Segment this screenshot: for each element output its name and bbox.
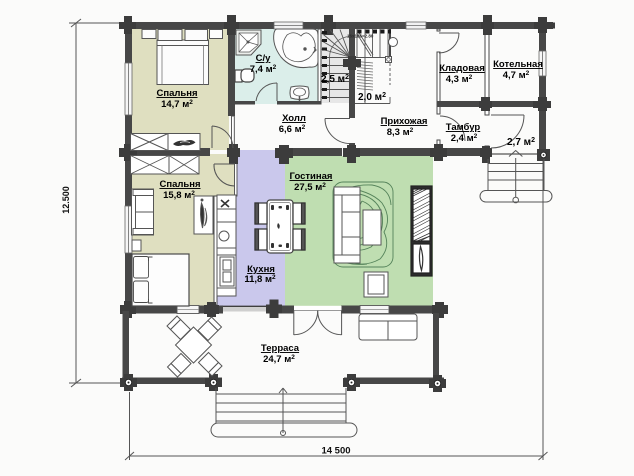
svg-text:С/у: С/у [256,53,272,64]
svg-text:4,3 м2: 4,3 м2 [446,74,473,85]
svg-text:24,7 м2: 24,7 м2 [263,354,295,365]
svg-text:Тамбур: Тамбур [446,122,481,133]
svg-text:2,7 м2: 2,7 м2 [507,137,535,148]
svg-text:4,7 м2: 4,7 м2 [503,70,530,81]
svg-text:Котельная: Котельная [493,59,543,70]
svg-text:12.500: 12.500 [61,186,71,214]
svg-text:27,5 м2: 27,5 м2 [294,182,326,193]
svg-text:Холл: Холл [282,113,306,124]
svg-text:2,4 м2: 2,4 м2 [451,133,478,144]
svg-text:11,8 м2: 11,8 м2 [244,274,276,285]
svg-text:Терраса: Терраса [261,343,300,354]
svg-text:Спальня: Спальня [159,179,200,190]
svg-text:2,5 м2: 2,5 м2 [321,74,349,85]
svg-text:Прихожая: Прихожая [381,116,428,127]
svg-text:2,0 м2: 2,0 м2 [358,92,386,103]
svg-text:15,8 м2: 15,8 м2 [163,190,195,201]
svg-text:14 500: 14 500 [321,446,350,457]
svg-text:6,6 м2: 6,6 м2 [279,124,306,135]
svg-text:8,3 м2: 8,3 м2 [387,127,414,138]
svg-text:16x186=2.80: 16x186=2.80 [347,34,374,39]
svg-text:Кладовая: Кладовая [439,63,485,74]
svg-text:Спальня: Спальня [156,88,197,99]
svg-text:Гостиная: Гостиная [290,171,333,182]
svg-text:14,7 м2: 14,7 м2 [161,99,193,110]
svg-text:7,4 м2: 7,4 м2 [250,64,277,75]
